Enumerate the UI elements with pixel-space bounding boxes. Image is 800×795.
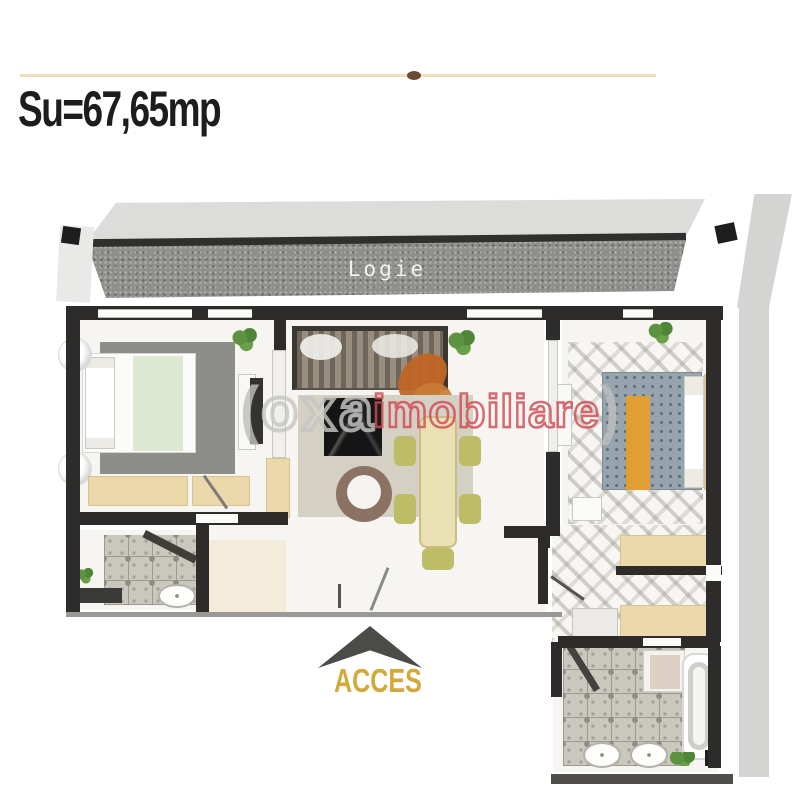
dining-chair	[459, 494, 481, 524]
entrance-door-mark	[338, 584, 341, 608]
wall-bathroom-right-right	[708, 646, 721, 768]
balcony-left-post	[61, 226, 81, 245]
door-gap-bedroom-left	[196, 514, 238, 523]
bed-right-runner	[626, 396, 650, 490]
toilet	[158, 584, 196, 608]
wall-right-gap	[706, 565, 721, 581]
window-bedroom-left-2	[208, 309, 252, 318]
bathtub-inner	[688, 662, 710, 750]
balcony-right-post	[714, 222, 737, 244]
dining-chair	[459, 436, 481, 466]
tv-unit	[250, 378, 263, 444]
bed-right-pillows	[684, 376, 704, 488]
coffee-table	[324, 398, 382, 456]
wall-bathroom-right-left	[551, 642, 562, 697]
partition-living-bedroom	[548, 340, 558, 452]
bed-left-pillows	[85, 357, 115, 449]
access-label: ACCES	[334, 662, 410, 700]
partition-living-bedroom-lower	[546, 452, 560, 536]
wardrobe-bottom	[620, 605, 718, 639]
dining-chair	[422, 548, 454, 570]
partition-bedroom-living	[272, 350, 286, 458]
sink	[583, 742, 621, 768]
partition-shelf-wood	[266, 458, 290, 518]
door-gap-bathroom-right	[643, 638, 681, 646]
hallway-floor-beige	[202, 540, 286, 612]
wall-right	[706, 312, 721, 642]
wall-bathroom-right-bottom	[551, 774, 733, 784]
sofa-pillow-2	[372, 334, 418, 358]
window-bedroom-left	[98, 309, 192, 318]
dining-table	[419, 416, 457, 548]
wall-bathroom-right-top	[558, 636, 720, 648]
accent-line	[20, 74, 656, 77]
balcony-face: Logie	[88, 240, 686, 298]
balcony-label: Logie	[348, 257, 426, 281]
exterior-wall-right-band	[739, 303, 769, 777]
window-bedroom-right	[623, 309, 653, 318]
exterior-wall-diagonal	[734, 194, 792, 308]
bed-left-runner	[133, 356, 183, 451]
wall-left	[66, 306, 80, 616]
area-label: Su=67,65mp	[18, 80, 220, 138]
balcony-door-living	[467, 309, 542, 318]
wardrobe-top	[620, 535, 720, 568]
accent-line-dot	[407, 71, 421, 80]
wall-bathroom-left-right	[196, 524, 209, 616]
nightstand-right	[572, 497, 602, 521]
wall-bedroom-left-bottom	[72, 512, 288, 525]
dining-chair	[394, 494, 416, 524]
pouf-top	[347, 475, 381, 509]
dining-chair	[394, 436, 416, 466]
plant-icon	[448, 330, 476, 356]
bathroom-radiator	[80, 588, 122, 603]
wall-hall-bottom	[66, 612, 562, 617]
floorplan-canvas: Su=67,65mp Logie	[0, 0, 800, 795]
plant-icon	[232, 328, 258, 352]
plant-icon	[648, 322, 674, 344]
bedroom-left-dresser	[88, 476, 188, 506]
sofa-pillow	[300, 334, 342, 360]
wall-hall-dressing	[538, 534, 548, 604]
plant-icon	[668, 752, 698, 766]
sink	[630, 742, 668, 768]
partition-bedroom-living-post	[274, 306, 286, 352]
shower-mat	[650, 655, 680, 689]
dressing-cabinet	[572, 608, 618, 638]
partition-living-bedroom-post	[546, 310, 560, 340]
